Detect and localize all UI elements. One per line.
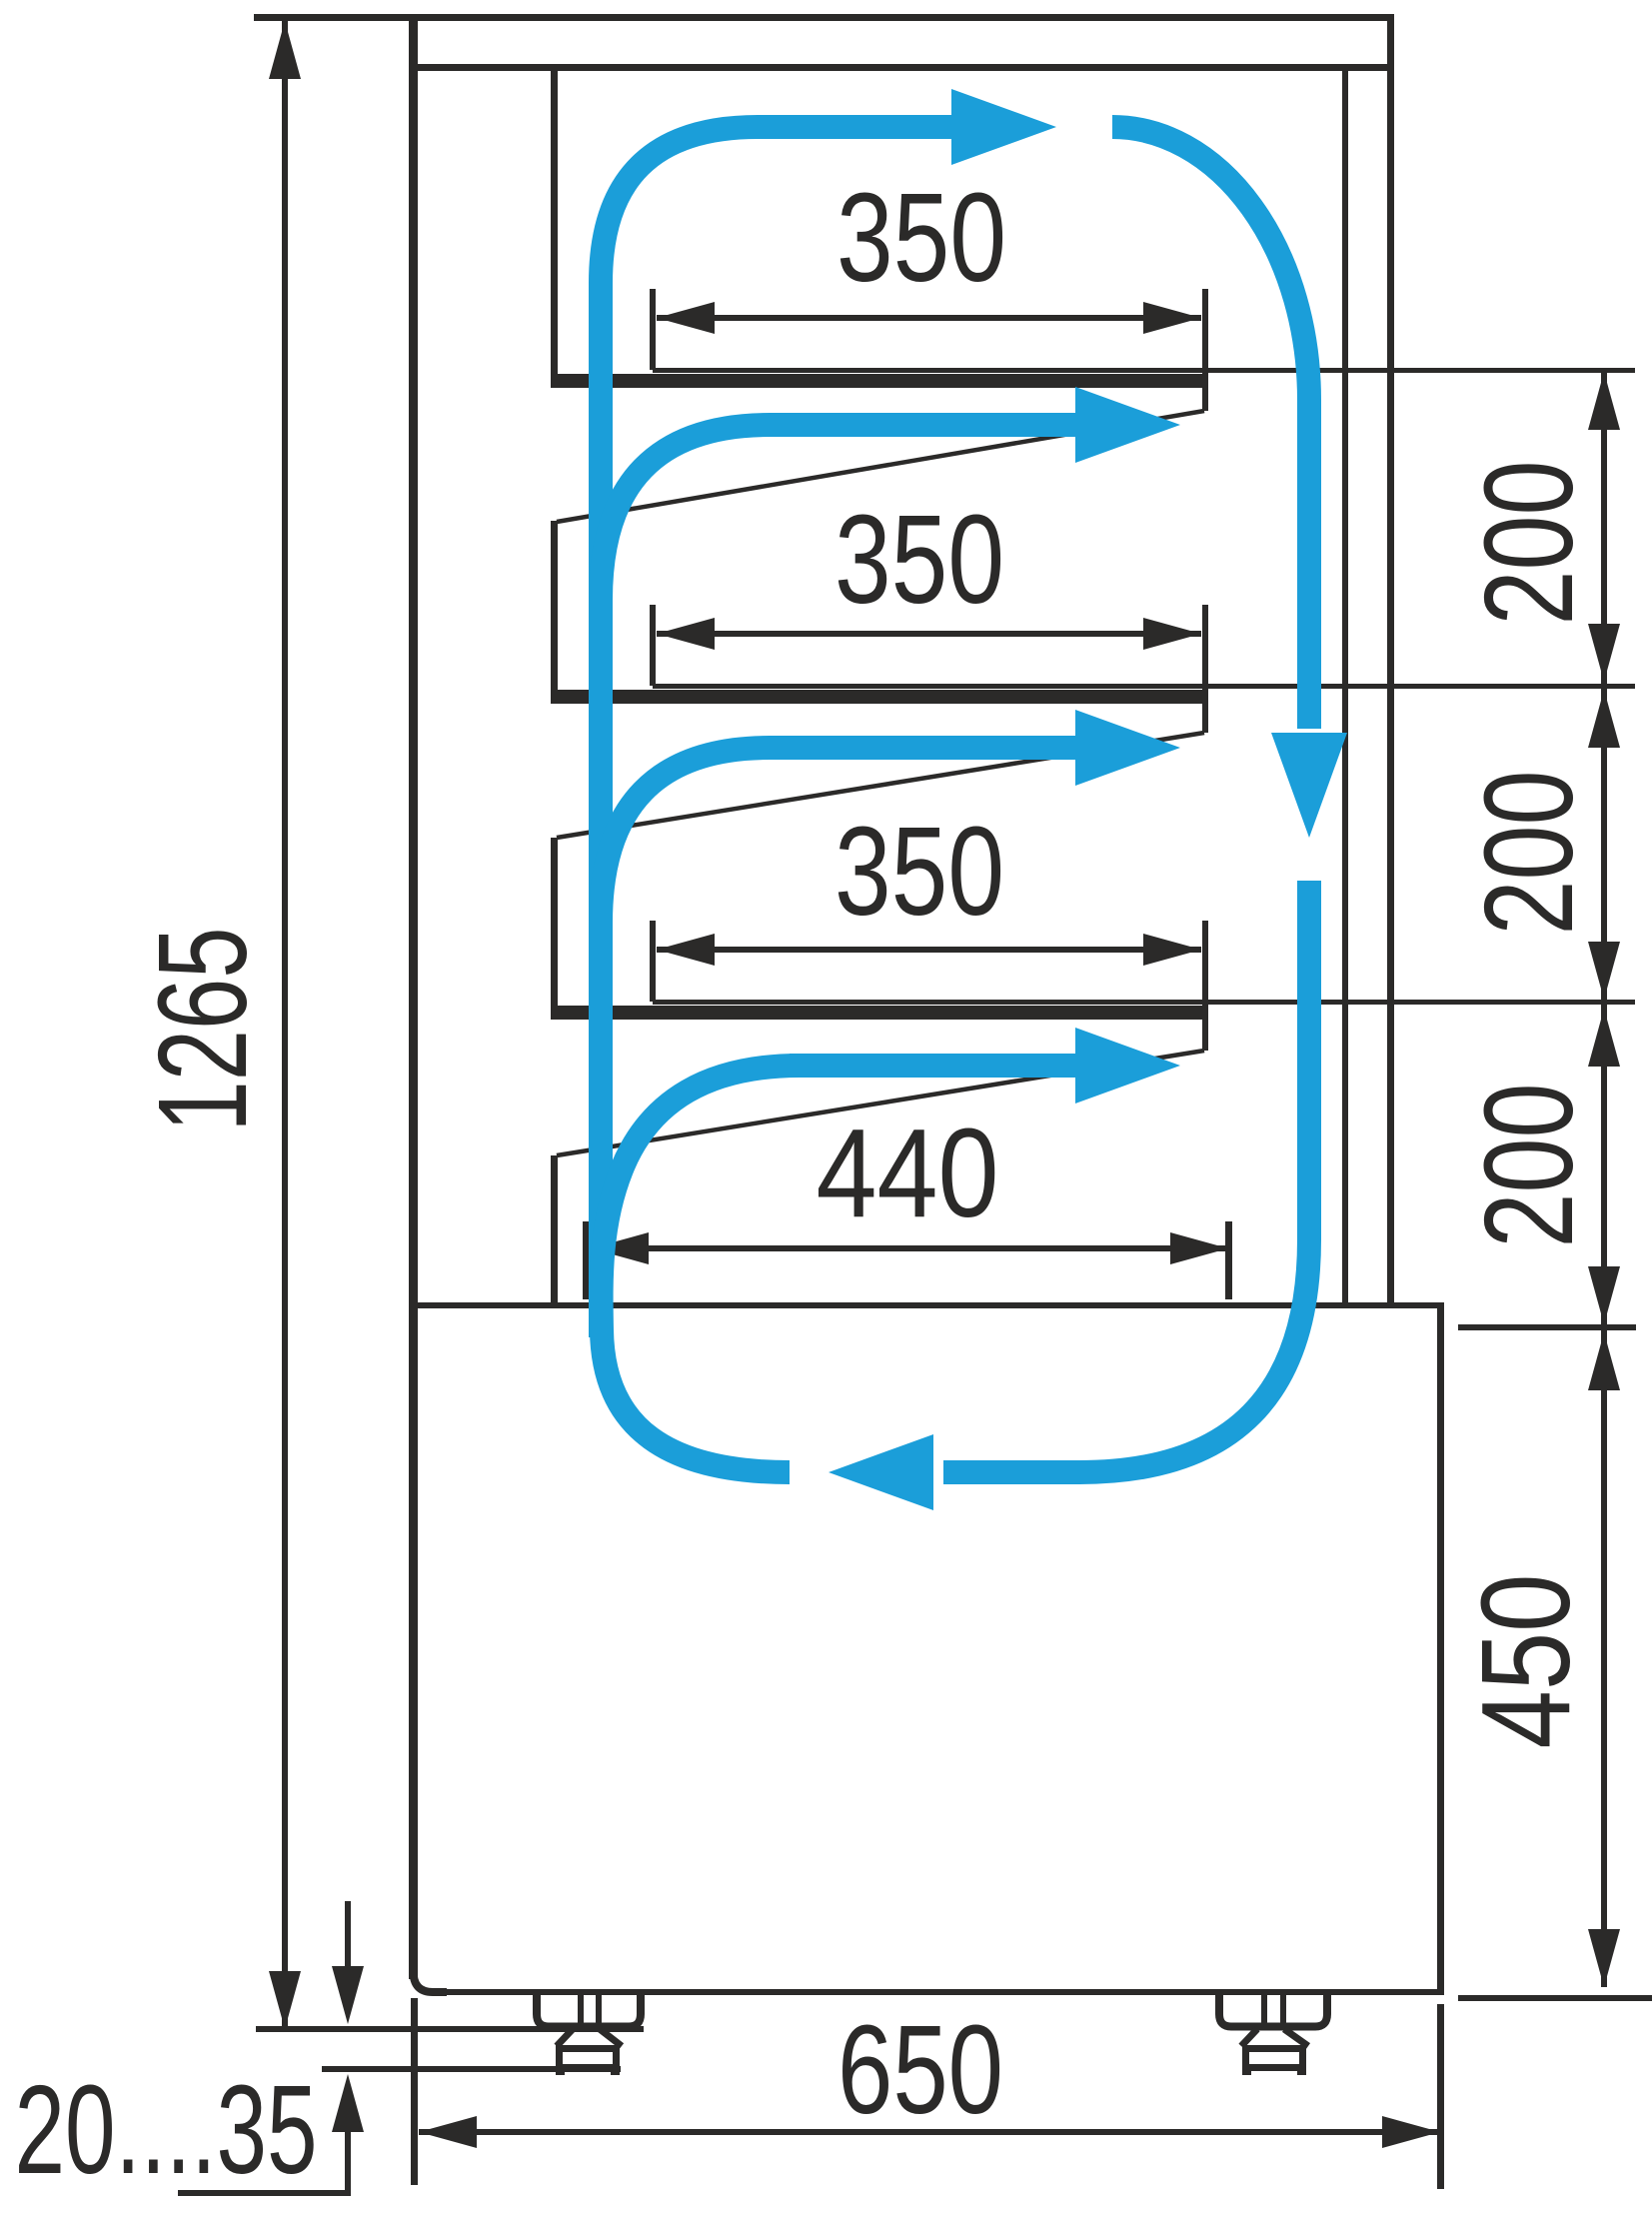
svg-text:200: 200 [1458, 1084, 1599, 1248]
svg-text:440: 440 [817, 1103, 999, 1243]
svg-text:350: 350 [834, 801, 1004, 942]
svg-text:350: 350 [836, 167, 1006, 308]
svg-text:650: 650 [837, 1999, 1003, 2140]
svg-text:20....35: 20....35 [15, 2059, 318, 2200]
svg-text:200: 200 [1458, 771, 1599, 936]
svg-text:450: 450 [1455, 1574, 1596, 1749]
svg-text:1265: 1265 [132, 928, 273, 1132]
svg-text:200: 200 [1458, 461, 1599, 626]
svg-text:350: 350 [834, 489, 1004, 630]
